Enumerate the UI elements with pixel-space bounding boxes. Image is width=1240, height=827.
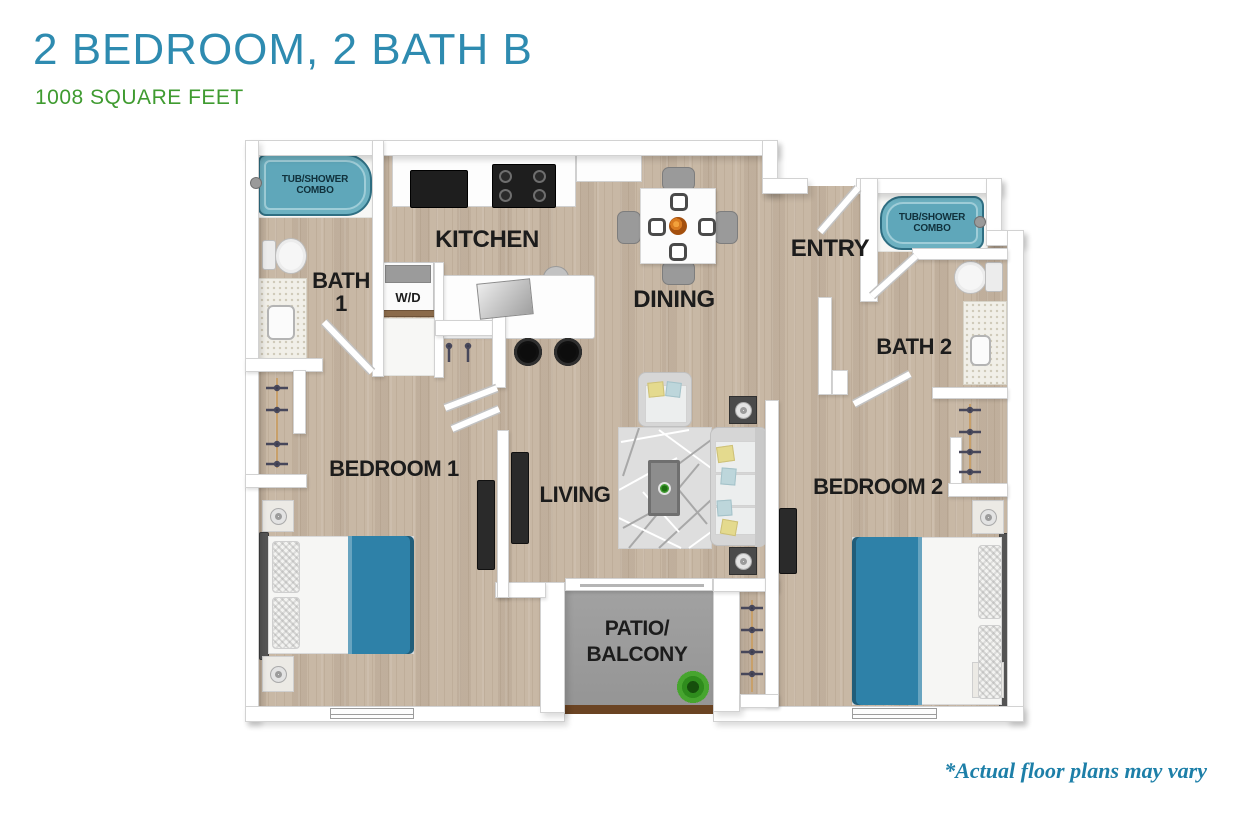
wall: [245, 358, 323, 372]
centerpiece-icon: [669, 217, 687, 235]
toilet-icon: [985, 262, 1003, 292]
wall: [245, 140, 259, 722]
window: [330, 708, 414, 719]
burner-icon: [533, 170, 546, 183]
room-label-kitchen: KITCHEN: [435, 226, 539, 254]
burner-icon: [499, 170, 512, 183]
kitchen-counter: [576, 154, 642, 182]
pillow-icon: [978, 625, 1002, 699]
side-table-icon: [729, 547, 757, 575]
burner-icon: [499, 189, 512, 202]
dining-chair-icon: [617, 211, 641, 244]
nightstand-icon: [262, 500, 294, 532]
burner-icon: [533, 189, 546, 202]
nightstand-icon: [972, 500, 1004, 534]
lamp-icon: [980, 509, 997, 526]
washer-dryer-label: W/D: [395, 290, 420, 305]
sink-icon: [267, 305, 295, 340]
floor-plan: TUB/SHOWERCOMBO TUB/SHOWERCOMBO: [0, 0, 1240, 827]
coffee-table-icon: [648, 460, 680, 516]
pillow-icon: [272, 541, 300, 593]
wall: [765, 400, 779, 706]
patio-slider-door: [565, 578, 713, 591]
wall: [1007, 230, 1024, 722]
pillow-icon: [720, 467, 736, 485]
wall: [932, 387, 1008, 399]
wall: [372, 140, 384, 377]
sink-icon: [970, 335, 991, 366]
wall: [497, 430, 509, 598]
bar-stool-icon: [554, 338, 582, 366]
wall: [818, 297, 832, 395]
room-label-bedroom2: BEDROOM 2: [813, 474, 943, 500]
floor-plan-page: 2 BEDROOM, 2 BATH B 1008 SQUARE FEET *Ac…: [0, 0, 1240, 827]
plate-icon: [698, 218, 716, 236]
washer-dryer-edge: [380, 310, 436, 317]
toilet-icon: [262, 240, 276, 270]
wall: [912, 248, 1008, 260]
pillow-icon: [272, 597, 300, 649]
dining-chair-icon: [714, 211, 738, 244]
wall: [435, 320, 500, 336]
wall: [948, 483, 1008, 497]
lamp-icon: [735, 402, 752, 419]
bar-stool-icon: [514, 338, 542, 366]
toilet-bowl-icon: [954, 261, 987, 294]
pillow-icon: [720, 519, 738, 537]
room-label-living: LIVING: [540, 482, 611, 508]
plate-icon: [670, 193, 688, 211]
room-label-bath1-number: 1: [335, 291, 347, 317]
toilet-bowl-icon: [275, 238, 307, 274]
room-label-entry: ENTRY: [791, 235, 869, 263]
lamp-icon: [735, 553, 752, 570]
pillow-icon: [665, 381, 682, 398]
bathtub-icon: TUB/SHOWERCOMBO: [258, 154, 372, 216]
island-sink-icon: [476, 278, 533, 319]
stove-icon: [492, 164, 556, 208]
pillow-icon: [716, 499, 732, 516]
dining-chair-icon: [662, 261, 695, 285]
wall: [740, 694, 779, 708]
plate-icon: [648, 218, 666, 236]
side-table-icon: [729, 396, 757, 424]
wall: [950, 437, 962, 487]
room-label-patio-line2: BALCONY: [586, 643, 687, 667]
window: [852, 708, 937, 719]
room-label-patio-line1: PATIO/: [605, 617, 670, 641]
wall: [540, 582, 565, 713]
wall: [713, 588, 740, 712]
wall: [832, 370, 848, 395]
room-label-dining: DINING: [633, 286, 715, 314]
oven-icon: [410, 170, 468, 208]
pillow-icon: [978, 545, 1002, 619]
tv-icon: [511, 452, 529, 544]
washer-dryer-unit: W/D: [382, 262, 434, 312]
faucet-icon: [250, 177, 262, 189]
tub-shower-label: TUB/SHOWERCOMBO: [882, 198, 982, 248]
faucet-icon: [974, 216, 986, 228]
tub-shower-label: TUB/SHOWERCOMBO: [260, 156, 370, 214]
room-label-bath2: BATH 2: [876, 334, 951, 360]
lamp-icon: [270, 508, 287, 525]
tv-icon: [477, 480, 495, 570]
plate-icon: [669, 243, 687, 261]
armchair-icon: [638, 372, 692, 427]
nightstand-icon: [262, 656, 294, 692]
wall: [293, 370, 306, 434]
washer-dryer-top: [385, 265, 431, 283]
bed-blanket: [348, 536, 414, 654]
bed-blanket: [852, 537, 922, 705]
wall: [492, 310, 506, 388]
patio-edge: [565, 705, 713, 714]
wall: [245, 474, 307, 488]
sofa-icon: [710, 427, 768, 546]
pillow-icon: [647, 381, 664, 398]
lamp-icon: [270, 666, 287, 683]
bathtub-icon: TUB/SHOWERCOMBO: [880, 196, 984, 250]
pillow-icon: [716, 445, 735, 463]
plant-icon: [676, 670, 710, 704]
tv-icon: [779, 508, 797, 574]
linen-closet: [378, 318, 440, 376]
wall: [762, 178, 808, 194]
room-label-bedroom1: BEDROOM 1: [329, 456, 459, 482]
glass-door-line: [580, 584, 704, 587]
plant-icon: [658, 482, 671, 495]
wall: [245, 140, 778, 156]
